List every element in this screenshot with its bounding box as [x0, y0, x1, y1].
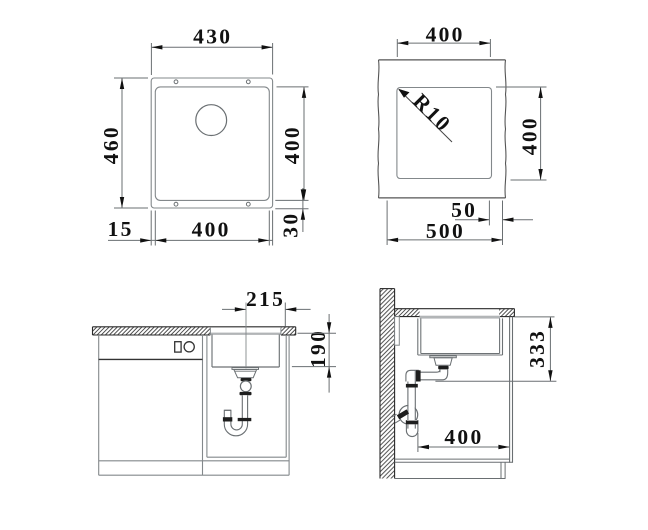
svg-text:400: 400 — [444, 425, 483, 449]
svg-text:190: 190 — [306, 329, 330, 368]
svg-text:215: 215 — [246, 287, 285, 311]
svg-text:460: 460 — [99, 125, 123, 164]
svg-text:333: 333 — [525, 329, 549, 368]
svg-text:400: 400 — [517, 116, 541, 155]
svg-text:400: 400 — [192, 218, 231, 242]
svg-text:400: 400 — [280, 125, 304, 164]
svg-text:430: 430 — [193, 25, 232, 49]
svg-text:15: 15 — [108, 217, 134, 241]
svg-text:30: 30 — [278, 212, 302, 238]
